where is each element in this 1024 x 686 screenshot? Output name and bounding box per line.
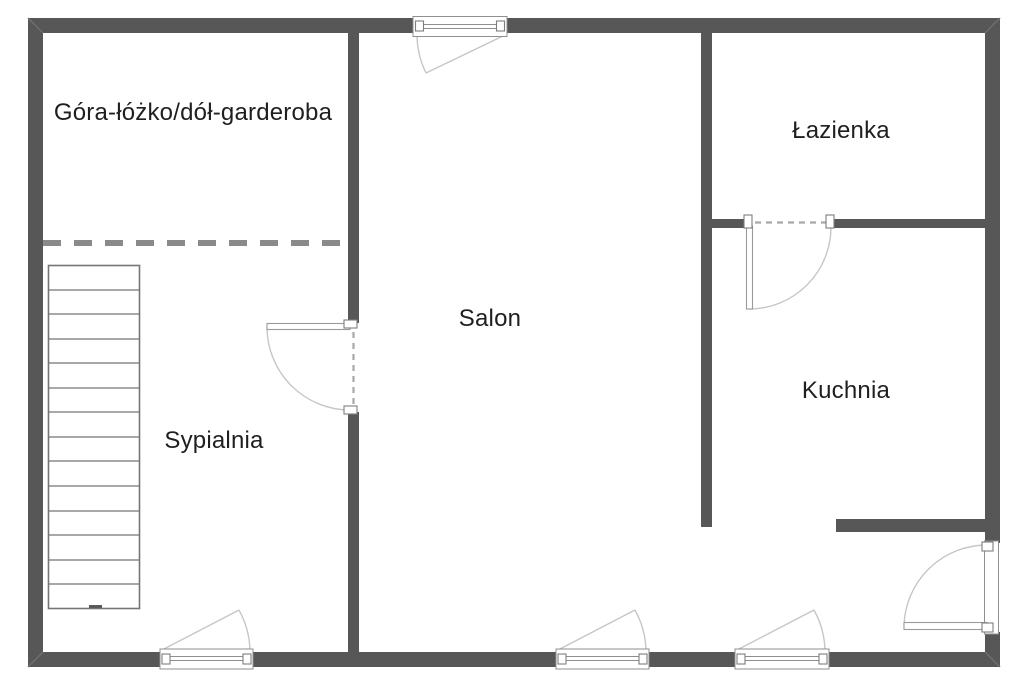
window-jamb-block (497, 21, 505, 31)
window-frame (160, 649, 253, 669)
window-sash-line (426, 35, 505, 73)
outer-wall-right-lower-segment (985, 632, 1000, 667)
room-label-salon: Salon (459, 305, 521, 333)
wall-bathroom-right-segment (832, 219, 985, 228)
window-sash-line (558, 610, 635, 650)
door-jamb-block (344, 406, 357, 414)
door-frame (985, 541, 999, 634)
door-swing-arc (267, 327, 350, 410)
room-label-kuchnia: Kuchnia (802, 377, 890, 405)
outer-wall-bottom-segment-2 (253, 652, 556, 667)
window-swing-arc (635, 610, 646, 650)
outer-wall-right-upper-segment (985, 18, 1000, 543)
window-jamb-block (416, 21, 424, 31)
wall-bathroom-left-segment (701, 219, 745, 228)
outer-wall-bottom-segment-4 (829, 652, 1000, 667)
entrance-door (904, 541, 999, 634)
bedroom-door (267, 320, 357, 414)
room-label-garderoba: Góra-łóżko/dół-garderoba (54, 99, 332, 127)
door-swing-arc (750, 227, 832, 309)
outer-wall-left (28, 18, 43, 667)
window-jamb-block (819, 654, 827, 664)
window-swing-arc (417, 35, 426, 73)
door-jamb-block (826, 215, 834, 228)
window-frame (413, 17, 507, 37)
outer-wall-top-left-segment (28, 18, 413, 33)
door-leaf (747, 226, 753, 309)
outer-wall-bottom-segment-3 (649, 652, 735, 667)
door-jamb-block (744, 215, 752, 228)
door-swing-arc (904, 545, 987, 626)
window-swing-arc (814, 610, 825, 650)
living-room-window (556, 610, 649, 669)
stairs-entry-mark (89, 605, 102, 608)
window-swing-arc (239, 610, 250, 650)
kitchen-window (735, 610, 829, 669)
wall-bedroom-living-lower (348, 412, 359, 652)
wall-living-kitchen (701, 33, 712, 527)
window-jamb-block (639, 654, 647, 664)
door-jamb-block (982, 542, 993, 551)
door-jamb-block (344, 320, 357, 328)
window-frame (556, 649, 649, 669)
outer-wall-top-right-segment (507, 18, 1000, 33)
wall-kitchen-stub (836, 519, 985, 532)
window-jamb-block (737, 654, 745, 664)
stairs (49, 266, 140, 609)
window-sash-line (162, 610, 239, 650)
outer-wall-bottom-segment-1 (28, 652, 160, 667)
bathroom-door (744, 215, 834, 309)
door-leaf (267, 324, 350, 330)
room-label-lazienka: Łazienka (792, 117, 890, 145)
window-jamb-block (162, 654, 170, 664)
door-jamb-block (982, 623, 993, 632)
wall-bedroom-living-upper (348, 33, 359, 323)
room-label-sypialnia: Sypialnia (164, 427, 263, 455)
window-frame (735, 649, 829, 669)
window-jamb-block (558, 654, 566, 664)
window-sash-line (737, 610, 814, 650)
door-leaf (904, 623, 987, 630)
floor-plan: Góra-łóżko/dół-garderoba Sypialnia Salon… (0, 0, 1024, 686)
window-jamb-block (243, 654, 251, 664)
bedroom-window (160, 610, 253, 669)
top-window (413, 17, 507, 74)
